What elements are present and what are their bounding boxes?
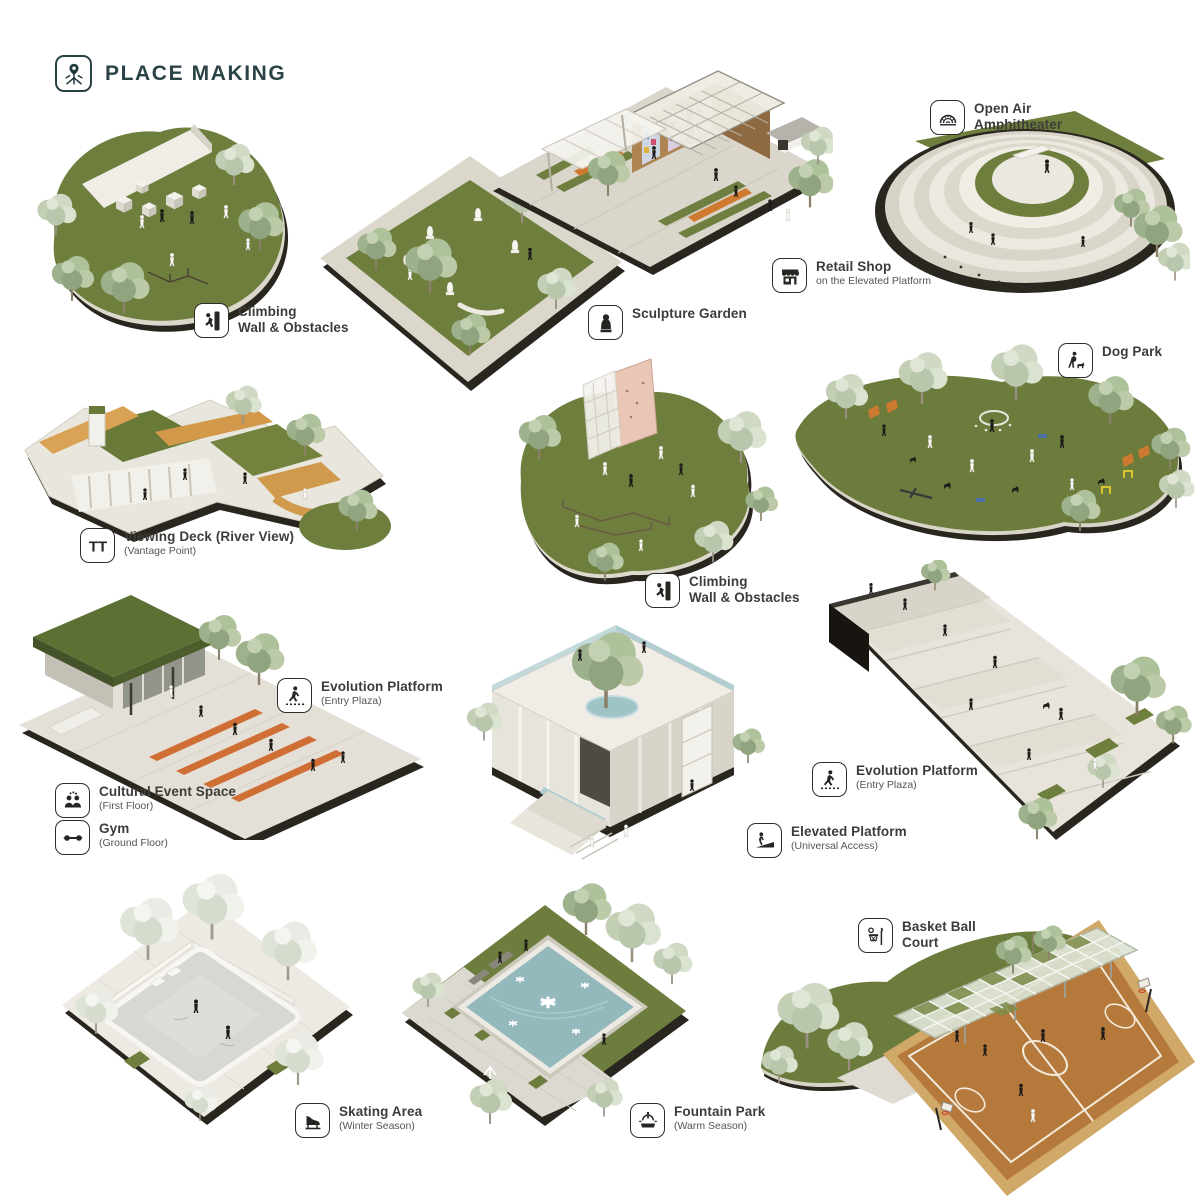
feature-title: Dog Park: [1102, 344, 1162, 360]
feature-title: Gym: [99, 821, 168, 837]
feature-title: Viewing Deck (River View): [124, 529, 294, 545]
feature-title: Skating Area: [339, 1104, 422, 1120]
label-elevated-platform: Elevated Platform(Universal Access): [747, 823, 907, 858]
cultural-event-icon: [55, 783, 90, 818]
evolution-platform-icon: [812, 762, 847, 797]
feature-subtitle: on the Elevated Platform: [816, 275, 931, 287]
feature-title: Fountain Park: [674, 1104, 765, 1120]
feature-subtitle: (Vantage Point): [124, 545, 294, 557]
label-amphitheater: Open AirAmphitheater: [930, 100, 1062, 135]
feature-subtitle: (Ground Floor): [99, 837, 168, 849]
label-sculpture-garden: Sculpture Garden: [588, 305, 747, 340]
evolution-platform-icon: [277, 678, 312, 713]
render-climbing-wall-2: [455, 355, 785, 605]
page-title: PLACE MAKING: [105, 62, 286, 86]
place-making-pin-icon: [55, 55, 92, 92]
render-evolution-platform-east: [785, 560, 1195, 845]
render-climbing-wall-1: [20, 100, 310, 335]
dog-park-icon: [1058, 343, 1093, 378]
feature-title-2: Wall & Obstacles: [238, 320, 349, 336]
label-climbing-wall-2: ClimbingWall & Obstacles: [645, 573, 800, 608]
svg-text:TT: TT: [88, 538, 106, 555]
feature-title: Cultural Event Space: [99, 784, 236, 800]
label-retail-shop: Retail Shopon the Elevated Platform: [772, 258, 931, 293]
label-viewing-deck: TT Viewing Deck (River View)(Vantage Poi…: [80, 528, 294, 563]
label-dog-park: Dog Park: [1058, 343, 1162, 378]
viewing-deck-icon: TT: [80, 528, 115, 563]
feature-subtitle: (Warm Season): [674, 1120, 765, 1132]
feature-title-2: Court: [902, 935, 976, 951]
fountain-icon: [630, 1103, 665, 1138]
feature-title-2: Wall & Obstacles: [689, 590, 800, 606]
render-retail-shop: [478, 25, 833, 275]
feature-title: Sculpture Garden: [632, 306, 747, 322]
retail-shop-icon: [772, 258, 807, 293]
label-basketball-court: Basket BallCourt: [858, 918, 976, 953]
label-gym: Gym(Ground Floor): [55, 820, 168, 855]
label-climbing-wall-1: ClimbingWall & Obstacles: [194, 303, 349, 338]
feature-title: Evolution Platform: [321, 679, 443, 695]
feature-title: Evolution Platform: [856, 763, 978, 779]
label-fountain-park: Fountain Park(Warm Season): [630, 1103, 765, 1138]
skating-icon: [295, 1103, 330, 1138]
climbing-icon: [645, 573, 680, 608]
label-evolution-platform-east: Evolution Platform(Entry Plaza): [812, 762, 978, 797]
basketball-icon: [858, 918, 893, 953]
label-evolution-platform-west: Evolution Platform(Entry Plaza): [277, 678, 443, 713]
page-header: PLACE MAKING: [55, 55, 286, 92]
feature-title: Climbing: [689, 574, 800, 590]
amphitheater-icon: [930, 100, 965, 135]
placemaking-board: PLACE MAKING: [0, 0, 1200, 1200]
sculpture-icon: [588, 305, 623, 340]
elevated-ramp-icon: [747, 823, 782, 858]
feature-subtitle: (Winter Season): [339, 1120, 422, 1132]
gym-dumbbell-icon: [55, 820, 90, 855]
feature-title-2: Amphitheater: [974, 117, 1062, 133]
feature-title: Climbing: [238, 304, 349, 320]
feature-title: Open Air: [974, 101, 1062, 117]
feature-title: Elevated Platform: [791, 824, 907, 840]
label-skating-area: Skating Area(Winter Season): [295, 1103, 422, 1138]
feature-subtitle: (Entry Plaza): [856, 779, 978, 791]
feature-subtitle: (First Floor): [99, 800, 236, 812]
render-elevated-platform: [430, 595, 770, 875]
label-cultural-event-space: Cultural Event Space(First Floor): [55, 783, 236, 818]
feature-title: Basket Ball: [902, 919, 976, 935]
feature-title: Retail Shop: [816, 259, 931, 275]
feature-subtitle: (Universal Access): [791, 840, 907, 852]
climbing-icon: [194, 303, 229, 338]
feature-subtitle: (Entry Plaza): [321, 695, 443, 707]
